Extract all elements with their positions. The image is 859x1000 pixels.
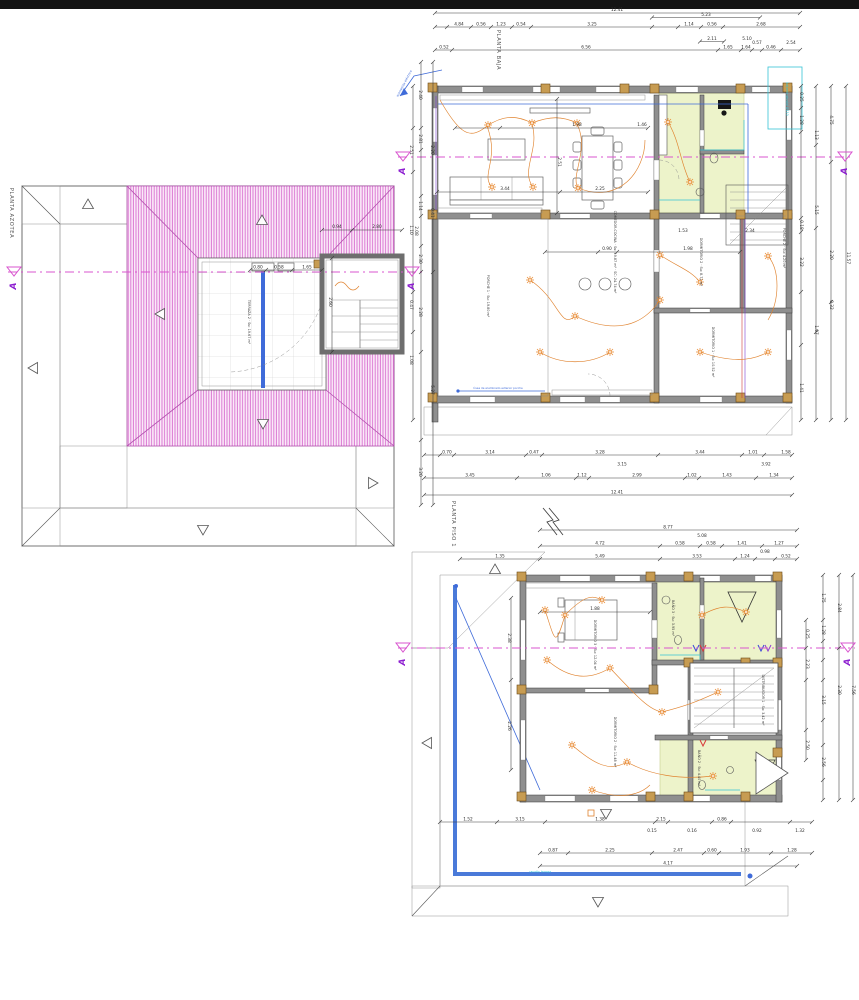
dimension-label: 0.98 [760, 549, 770, 555]
outlet-marker [588, 810, 594, 816]
dimension-label: 0.94 [332, 224, 342, 230]
dimension-label: 0.25 [798, 92, 804, 102]
note-label: canalón terraza [529, 870, 551, 874]
dimension-label: 0.47 [529, 450, 539, 456]
dimension-label: 2.54 [786, 40, 796, 46]
dimension-label: 2.28 [417, 307, 423, 317]
dim-chain [422, 476, 794, 480]
insulation-band [552, 390, 652, 395]
floor-plan-canvas: PLANTA AZOTEA PLANTA BAJA PLANTA PISO 1 … [0, 0, 859, 1000]
room-label: DORMITORIO 1 · Su: 10.52 m² [711, 327, 715, 378]
plumbing-note-box [768, 67, 802, 129]
dimension-label: 0.80 [253, 265, 263, 271]
room-label: DORMITORIO 3 · Su: 12.04 m² [593, 620, 597, 671]
dimension-label: 0.86 [717, 817, 727, 823]
dimension-label: 3.53 [692, 554, 702, 560]
dimension-label: 1.01 [748, 450, 758, 456]
section-letter: A [398, 167, 408, 175]
dim-chain [422, 453, 794, 457]
dimension-label: 2.08 [413, 226, 419, 236]
dimension-label: 1.35 [495, 554, 505, 560]
dim-chain [509, 596, 513, 772]
dimension-label: 0.46 [766, 45, 776, 51]
light-point-icon [696, 348, 704, 356]
dimension-label: 5.15 [813, 205, 819, 215]
dimension-label: 2.15 [656, 817, 666, 823]
dimension-label: 3.25 [587, 22, 597, 28]
ground-porch-paving [424, 407, 792, 435]
dimension-label: 3.45 [465, 473, 475, 479]
dimension-label: 1.58 [781, 450, 791, 456]
dimension-label: 5.10 [742, 36, 752, 42]
light-point-icon [698, 611, 706, 619]
dimension-label: 2.80 [372, 224, 382, 230]
roof-stair-tower [322, 256, 402, 352]
dim-chain [438, 820, 814, 824]
dimension-label: 1.53 [678, 228, 688, 234]
dimension-label: 2.38 [506, 633, 512, 643]
porch-1-paving [438, 219, 548, 396]
dimension-label: 2.23 [804, 659, 810, 669]
dimension-label: 0.92 [752, 828, 762, 834]
dimension-label: 5.27 [429, 385, 435, 395]
dim-chain [821, 573, 825, 802]
insulation-band [525, 583, 655, 588]
dimension-label: 1.97 [813, 325, 819, 335]
dimension-label: 2.25 [595, 186, 605, 192]
dimension-label: 1.98 [572, 122, 582, 128]
dimension-label: 1.41 [798, 383, 804, 393]
light-point-icon [526, 276, 534, 284]
dimension-label: 0.18 [798, 220, 804, 230]
bed [558, 598, 617, 642]
dimension-label: 2.11 [707, 36, 717, 42]
light-point-icon [742, 608, 750, 616]
dimension-label: 0.54 [516, 22, 526, 28]
terrace-slope-line [456, 598, 540, 790]
light-point-icon [623, 758, 631, 766]
dimension-label: 0.47 [408, 300, 414, 310]
dimension-label: 0.41 [429, 208, 435, 218]
dimension-label: 3.44 [695, 450, 705, 456]
dimension-label: 0.25 [804, 629, 810, 639]
dimension-label: 1.24 [740, 554, 750, 560]
light-point-icon [484, 121, 492, 129]
light-point-icon [568, 741, 576, 749]
dimension-label: 2.30 [836, 685, 842, 695]
dimension-label: 1.28 [798, 115, 804, 125]
dimension-label: 1.46 [637, 122, 647, 128]
roof-plan [8, 186, 424, 546]
dimension-label: 3.22 [798, 257, 804, 267]
dimension-label: 2.34 [745, 228, 755, 234]
dimension-label: 0.32 [828, 300, 834, 310]
light-point-icon [488, 183, 496, 191]
dimension-label: 3.14 [485, 450, 495, 456]
dimension-label: 2.40 [417, 90, 423, 100]
section-letter: A [840, 167, 850, 175]
first-floor-plan [398, 508, 855, 916]
dimension-label: 0.60 [707, 848, 717, 854]
dimension-label: 1.13 [813, 130, 819, 140]
light-point-icon [541, 606, 549, 614]
roof-plan-title: PLANTA AZOTEA [8, 188, 14, 239]
drawing-sheet: PLANTA AZOTEA PLANTA BAJA PLANTA PISO 1 … [0, 0, 859, 1000]
light-point-icon [764, 252, 772, 260]
dimension-label: 2.51 [556, 157, 562, 167]
dimension-label: 0.52 [781, 554, 791, 560]
light-point-icon [598, 596, 606, 604]
room-label: BAÑO 2 · Su: 4.40 m² [697, 750, 702, 787]
room-label: DORMITORIO 2 · Su: 11.48 m² [613, 717, 617, 768]
slope-arrow-left [422, 738, 432, 749]
light-point-icon [606, 664, 614, 672]
dimension-label: 0.70 [442, 450, 452, 456]
dimension-label: 1.08 [408, 355, 414, 365]
dim-chain [543, 250, 742, 254]
dimension-label: 3.92 [761, 462, 771, 468]
dimension-label: 1.12 [577, 473, 587, 479]
dimension-label: 12.41 [611, 490, 624, 496]
note-label: línea de alumbrado exterior porche [473, 386, 523, 390]
dim-chain [555, 97, 559, 215]
dimension-label: 2.47 [673, 848, 683, 854]
dimension-label: 0.15 [647, 828, 657, 834]
dimension-label: 1.32 [795, 828, 805, 834]
section-letter: A [398, 658, 408, 666]
dimension-label: 1.93 [740, 848, 750, 854]
dimension-label: 0.52 [439, 45, 449, 51]
room-label: BAÑO 3 · Su: 3.95 m² [671, 600, 676, 637]
dimension-label: 11.57 [845, 252, 851, 265]
dimension-label: 3.15 [617, 462, 627, 468]
dimension-label: 1.65 [302, 265, 312, 271]
dimension-label: 8.77 [663, 525, 673, 531]
light-point-icon [664, 118, 672, 126]
dimension-label: 5.49 [595, 554, 605, 560]
light-point-icon [536, 348, 544, 356]
dimension-label: 1.27 [774, 541, 784, 547]
dimension-label: 1.75 [820, 593, 826, 603]
dimension-label: 1.88 [590, 606, 600, 612]
room-label: PORCHE 1 · Su: 19.80 m² [486, 275, 490, 318]
light-point-icon [686, 178, 694, 186]
section-letter: A [9, 282, 19, 290]
light-point-icon [588, 786, 596, 794]
room-label: COMEDOR-COCINA · Su: 19.87 m² · SC: 24.7… [613, 211, 617, 294]
dimension-label: 4.72 [595, 541, 605, 547]
dimension-label: 0.87 [548, 848, 558, 854]
dimension-label: 3.15 [820, 695, 826, 705]
dimension-label: 1.34 [769, 473, 779, 479]
dimension-label: 12.41 [611, 7, 624, 13]
dimension-label: 1.06 [541, 473, 551, 479]
light-point-icon [529, 183, 537, 191]
light-point-icon [606, 348, 614, 356]
dim-chain [799, 84, 803, 422]
room-label: TERRAZA 2 · Su: 19.67 m² [247, 299, 251, 345]
dim-chain [422, 493, 794, 497]
dimension-label: 0.56 [707, 22, 717, 28]
light-point-icon [656, 251, 664, 259]
dimension-label: 4.84 [454, 22, 464, 28]
dimension-label: 1.14 [417, 201, 423, 211]
dim-chain [419, 60, 423, 507]
dimension-label: 7.56 [850, 685, 856, 695]
dimension-label: 2.51 [408, 145, 414, 155]
dimension-label: 2.60 [327, 297, 333, 307]
light-point-icon [714, 688, 722, 696]
dimension-label: 2.20 [828, 250, 834, 260]
slope-arrow-down [593, 898, 604, 908]
dimension-label: 1.02 [687, 473, 697, 479]
insulation-band [432, 208, 542, 213]
dimension-label: 0.16 [687, 828, 697, 834]
dimension-label: 0.56 [476, 22, 486, 28]
dimension-label: 0.58 [274, 265, 284, 271]
dimension-label: 1.14 [684, 22, 694, 28]
dimension-label: 1.52 [463, 817, 473, 823]
dimension-label: 2.68 [756, 22, 766, 28]
dimension-label: 2.81 [417, 134, 423, 144]
top-letterbox-bar [0, 0, 859, 9]
dimension-label: 1.64 [741, 45, 751, 51]
light-point-icon [561, 611, 569, 619]
dimension-label: 5.08 [697, 533, 707, 539]
light-point-icon [656, 296, 664, 304]
light-point-icon [764, 348, 772, 356]
room-label: PORCHE 2 · Su: 4.20 m² [782, 228, 786, 269]
light-point-icon [571, 312, 579, 320]
dimension-label: 1.28 [787, 848, 797, 854]
dimension-label: 6.56 [581, 45, 591, 51]
dimension-label: 2.25 [605, 848, 615, 854]
dimension-label: 1.65 [723, 45, 733, 51]
note-label: bajante pluvial Ø110 [785, 82, 790, 115]
break-line-symbol [543, 508, 563, 535]
light-point-icon [574, 184, 582, 192]
dim-chain [433, 25, 802, 29]
dimension-label: 2.99 [632, 473, 642, 479]
dimension-label: 2.56 [820, 757, 826, 767]
dimension-label: 0.58 [706, 541, 716, 547]
dimension-label: 1.23 [496, 22, 506, 28]
insulation-band [440, 95, 645, 100]
door-swing-arc [588, 374, 610, 396]
dimension-label: 0.90 [602, 246, 612, 252]
dimension-label: 2.84 [836, 603, 842, 613]
dimension-label: 1.41 [737, 541, 747, 547]
drain-point [748, 874, 753, 879]
dimension-label: 2.50 [804, 740, 810, 750]
section-letter: A [843, 658, 853, 666]
dimension-label: 0.57 [752, 40, 762, 46]
dimension-label: 1.98 [683, 246, 693, 252]
light-point-icon [528, 119, 536, 127]
dimension-label: 4.17 [663, 861, 673, 867]
dimension-label: 1.28 [820, 625, 826, 635]
section-letter: A [407, 282, 417, 290]
light-point-icon [709, 772, 717, 780]
room-label: DORMITORIO 2 · Su: 8.71 m² [699, 238, 703, 287]
dim-chain [538, 544, 799, 548]
dim-chain [411, 84, 415, 422]
dimension-label: 3.15 [515, 817, 525, 823]
first-eave-left [412, 648, 440, 888]
dimension-label: 1.43 [722, 473, 732, 479]
dimension-label: 5.23 [701, 12, 711, 18]
dimension-label: 2.20 [429, 145, 435, 155]
dimension-label: 3.28 [595, 450, 605, 456]
light-point-icon [658, 708, 666, 716]
dimension-label: 1.38 [595, 817, 605, 823]
dimension-label: 0.58 [675, 541, 685, 547]
room-label: DISTRIBUIDOR 1 · Su: 3.42 m² [761, 675, 765, 727]
dimension-label: 3.20 [417, 467, 423, 477]
first-plan-title: PLANTA PISO 1 [450, 501, 456, 547]
light-point-icon [543, 656, 551, 664]
slope-arrow-up [490, 564, 501, 574]
dimension-label: 2.26 [506, 721, 512, 731]
dimension-label: 3.44 [500, 186, 510, 192]
dimension-label: 4.75 [828, 115, 834, 125]
dimension-label: 2.30 [417, 254, 423, 264]
